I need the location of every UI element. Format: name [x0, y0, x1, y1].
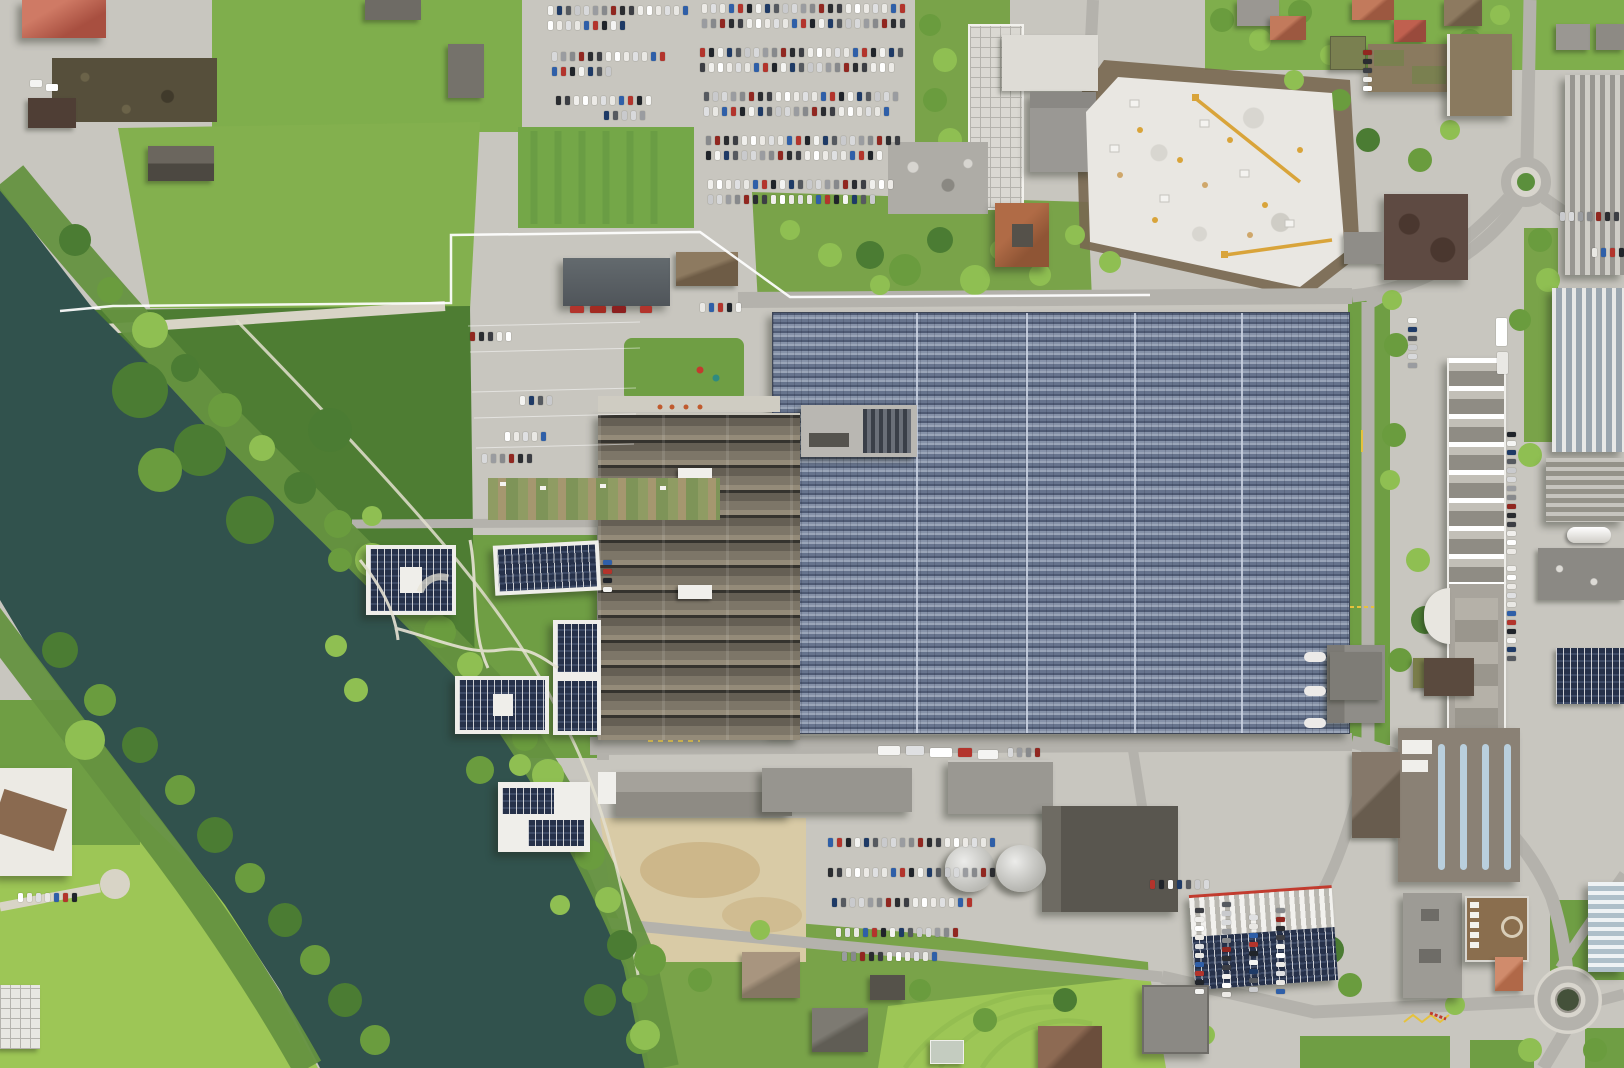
allotment-gardens	[488, 478, 720, 520]
fire-truck	[612, 306, 626, 313]
truck	[930, 748, 952, 757]
pv-array	[528, 820, 584, 846]
roof-equipment	[809, 433, 849, 447]
cabin-house	[148, 146, 214, 181]
apartment-south	[1142, 985, 1209, 1054]
fire-station-building	[563, 258, 670, 306]
roof-seam	[916, 313, 918, 733]
parked-van	[46, 84, 58, 91]
roof-seam	[1026, 313, 1028, 733]
dark-brown-building	[1384, 194, 1468, 280]
red-roof-house	[22, 0, 106, 38]
house-roof	[1444, 0, 1482, 26]
dark-panel-building-e	[1556, 648, 1624, 704]
container	[958, 748, 972, 757]
solar-apartment-b	[493, 540, 601, 595]
inner-courtyard	[1012, 224, 1033, 247]
industrial-hall-e	[1552, 288, 1624, 452]
pipes-facility	[888, 142, 988, 214]
dark-warehouse	[1042, 806, 1178, 912]
solar-factory-hall	[772, 312, 1350, 734]
gray-house	[1556, 24, 1590, 50]
dock-canopy	[598, 772, 616, 804]
village-house	[870, 975, 905, 1000]
brown-skylight-building	[1465, 896, 1529, 962]
dark-brown-block	[1424, 658, 1474, 696]
pv-array	[502, 788, 554, 814]
aerial-photo: Top-down aerial photograph of an industr…	[0, 0, 1624, 1068]
roof-unit	[1402, 760, 1428, 772]
house-roof	[1270, 16, 1306, 40]
fire-truck	[570, 306, 584, 313]
factory-roof-structure	[678, 585, 712, 599]
roof-court	[400, 567, 422, 593]
storage-tank	[996, 845, 1046, 892]
roof-unit	[1419, 949, 1441, 963]
pv-array	[557, 681, 597, 731]
dark-farm-house	[28, 98, 76, 128]
solar-apartment-c	[553, 620, 601, 735]
pv-array	[1192, 927, 1338, 990]
skylight-dots	[1470, 902, 1479, 952]
riverside-villa	[0, 768, 72, 876]
house-roof	[1394, 20, 1426, 42]
brown-house-top	[676, 252, 738, 286]
courtyard-house	[995, 203, 1049, 267]
villa-roof	[0, 789, 67, 851]
fire-truck	[590, 306, 606, 313]
apartment-block	[1368, 44, 1454, 92]
gray-vertical-building	[448, 44, 484, 98]
rooftop-penthouse	[801, 405, 917, 457]
gray-house	[1596, 24, 1624, 50]
office-building-se	[1403, 893, 1462, 998]
roof-ring-stain	[1501, 916, 1523, 938]
gray-flat-building	[1030, 92, 1096, 172]
white-tube-canopy	[1567, 527, 1611, 543]
roof-seam	[1241, 313, 1243, 733]
sawtooth-factory	[598, 413, 800, 740]
skylight-strip	[1438, 744, 1445, 870]
roof-unit	[1402, 740, 1432, 754]
greenhouse	[930, 1040, 964, 1064]
industrial-hall-e2	[1546, 458, 1624, 522]
hvac-vents	[863, 409, 911, 453]
truck	[1497, 352, 1508, 374]
garden-plot	[52, 58, 217, 122]
sawtooth-roof-section	[1449, 358, 1504, 584]
roof-court	[493, 694, 513, 716]
gray-block-mid	[1330, 652, 1382, 700]
skylight-strip	[1482, 744, 1489, 870]
white-building-bl	[0, 985, 40, 1049]
apartment-block	[1447, 34, 1512, 116]
gray-flat-building-south-b	[948, 760, 1053, 814]
roof-seam	[1134, 313, 1136, 733]
truck	[906, 746, 924, 755]
riverside-solar-building	[498, 782, 590, 852]
village-house	[812, 1008, 868, 1052]
garden-sheds	[1330, 36, 1366, 70]
green-roof-section	[1412, 66, 1446, 84]
brown-hip-house	[1038, 1026, 1102, 1068]
skylight-strip	[1504, 744, 1511, 870]
gray-block-e	[1538, 548, 1624, 600]
skylight-strip	[1460, 744, 1467, 870]
solar-apartment-d	[455, 676, 549, 734]
fire-truck	[640, 306, 652, 313]
truck	[1496, 318, 1507, 346]
orange-house-se	[1495, 957, 1523, 991]
white-commercial-building	[1002, 35, 1098, 91]
parked-van	[30, 80, 42, 87]
village-house	[742, 952, 800, 998]
pv-array	[557, 624, 597, 672]
truck	[878, 746, 900, 755]
factory-north-apron	[598, 396, 780, 412]
gray-flat-building-south-a	[762, 768, 912, 812]
pv-array	[497, 544, 597, 591]
striped-solar-warehouse	[1189, 885, 1338, 990]
glass-building-e	[1588, 882, 1624, 972]
industrial-hall-ne	[1565, 75, 1624, 275]
west-wing-se	[1352, 752, 1400, 838]
roof-unit	[1421, 909, 1439, 921]
green-roof-section	[1374, 50, 1404, 66]
gray-annex	[1344, 232, 1384, 264]
house-roof	[1352, 0, 1394, 20]
small-gray-building	[365, 0, 421, 20]
solar-apartment-a	[366, 545, 456, 615]
truck	[978, 750, 998, 759]
storage-tank	[945, 845, 995, 892]
factory-complex-se	[1398, 728, 1520, 882]
